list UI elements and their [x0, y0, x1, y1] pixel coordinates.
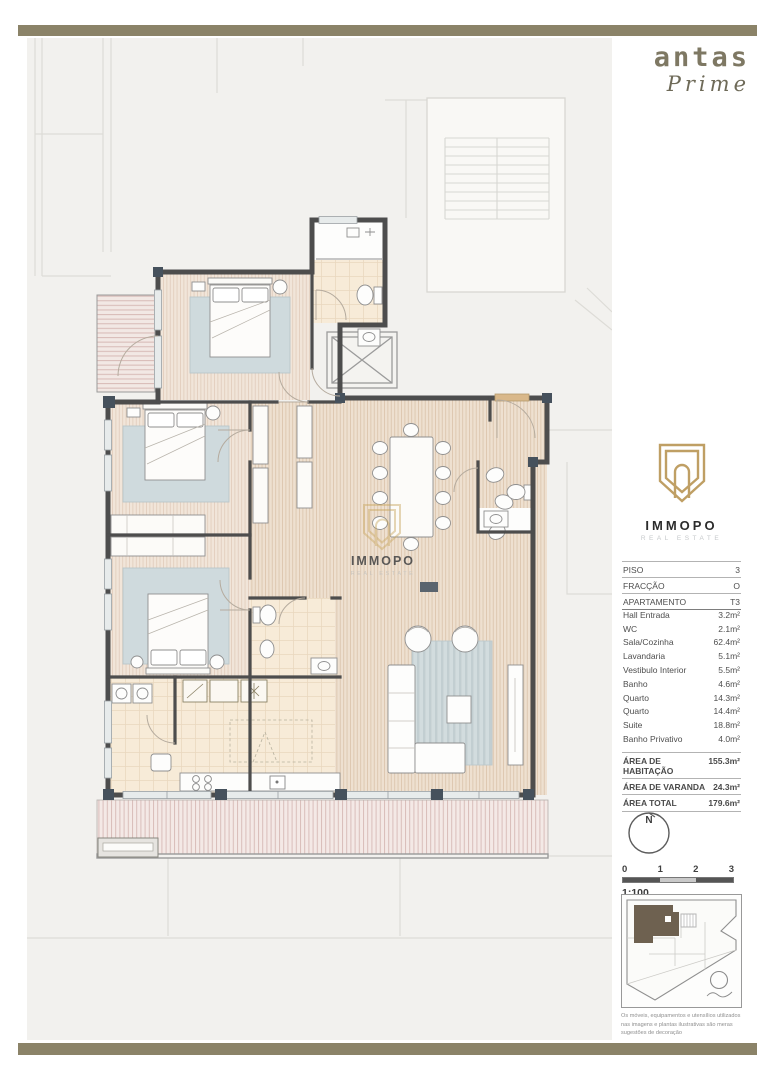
- total-varanda: ÁREA DE VARANDA24.3m²: [622, 779, 741, 795]
- agency-name: IMMOPO: [622, 518, 741, 533]
- room-row: Banho4.6m²: [622, 677, 741, 691]
- room-row: WC2.1m²: [622, 622, 741, 636]
- room-row: Quarto14.4m²: [622, 704, 741, 718]
- room-row: Hall Entrada3.2m²: [622, 608, 741, 622]
- unit-notch: [665, 916, 671, 922]
- room-row: Banho Privativo4.0m²: [622, 732, 741, 746]
- apartment-info-table: PISO3 FRACÇÃOO APARTAMENTOT3: [622, 561, 741, 610]
- immopo-logo: IMMOPO REAL ESTATE: [622, 443, 741, 542]
- info-row-fraccao: FRACÇÃOO: [622, 578, 741, 594]
- area-totals: ÁREA DE HABITAÇÃO155.3m² ÁREA DE VARANDA…: [622, 752, 741, 812]
- scale-bar-strip: [622, 877, 734, 883]
- scale-ticks: 0123: [622, 864, 734, 875]
- info-sidebar: IMMOPO REAL ESTATE PISO3 FRACÇÃOO APARTA…: [615, 0, 763, 1080]
- north-label: N: [645, 815, 652, 826]
- stairwell-context: [427, 98, 565, 292]
- room-row: Lavandaria5.1m²: [622, 649, 741, 663]
- bottom-accent-bar: [18, 1043, 757, 1055]
- agency-subtitle: REAL ESTATE: [622, 535, 741, 542]
- location-key-map: [621, 894, 742, 1008]
- watermark-name: IMMOPO: [351, 554, 415, 568]
- room-row: Quarto14.3m²: [622, 691, 741, 705]
- room-row: Sala/Cozinha62.4m²: [622, 636, 741, 650]
- watermark-sub: REAL ESTATE: [351, 571, 416, 577]
- terrace: [97, 295, 155, 392]
- balcony: [97, 800, 548, 858]
- total-habitacao: ÁREA DE HABITAÇÃO155.3m²: [622, 752, 741, 779]
- room-row: Suite18.8m²: [622, 718, 741, 732]
- floorplan-page: antas Prime: [0, 0, 763, 1080]
- floorplan-drawing: IMMOPO REAL ESTATE: [27, 38, 612, 1040]
- disclaimer-text: Os móveis, equipamentos e utensílios uti…: [621, 1012, 744, 1038]
- north-compass: N: [622, 806, 678, 858]
- info-row-piso: PISO3: [622, 561, 741, 578]
- room-area-list: Hall Entrada3.2m² WC2.1m² Sala/Cozinha62…: [622, 608, 741, 746]
- room-row: Vestibulo Interior5.5m²: [622, 663, 741, 677]
- immopo-shield-icon: [656, 443, 708, 505]
- keymap-stairs: [681, 914, 696, 927]
